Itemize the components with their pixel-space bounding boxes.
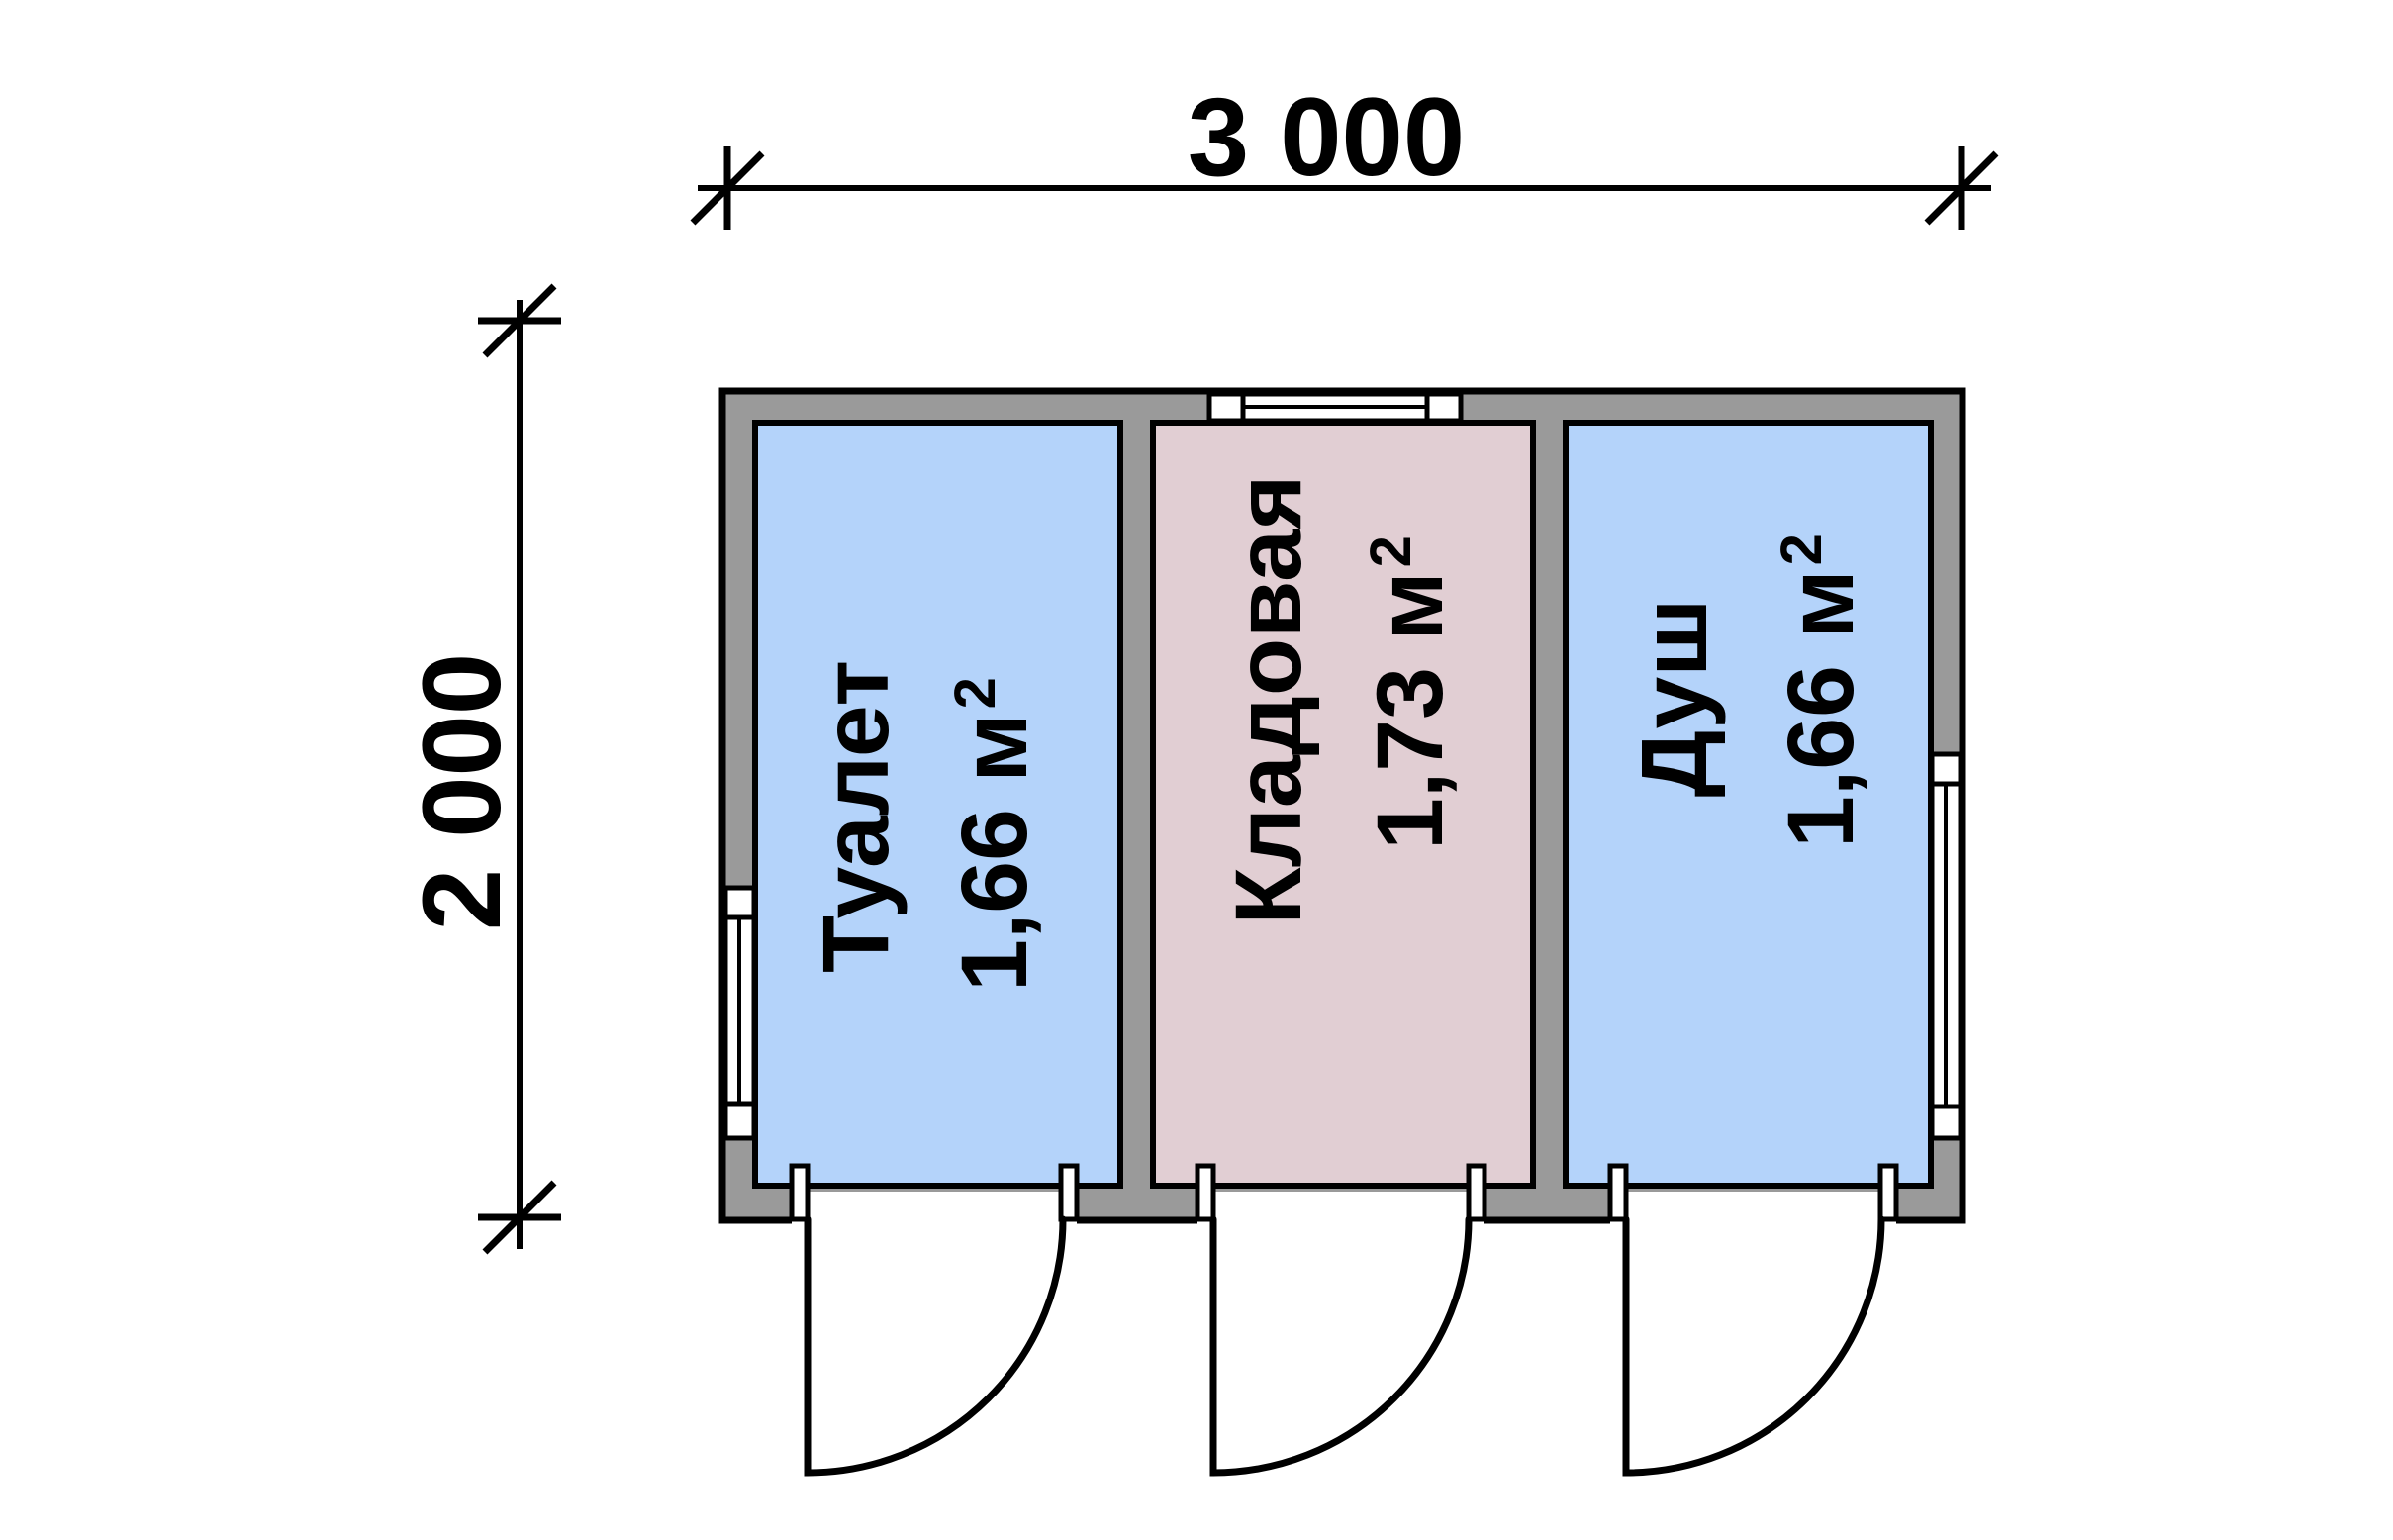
door2-jamb-right bbox=[1469, 1166, 1484, 1219]
room-storage bbox=[1153, 423, 1533, 1186]
window-right bbox=[1932, 754, 1961, 1138]
door3-jamb-left bbox=[1610, 1166, 1626, 1219]
floor-plan-svg: 3 000 2 000 Туалет 1,66 м2 Кладовая 1,73… bbox=[0, 0, 2393, 1540]
room-storage-name: Кладовая bbox=[1216, 475, 1321, 925]
door-openings bbox=[792, 1192, 1896, 1239]
room-toilet-name: Туалет bbox=[804, 660, 909, 973]
door3-jamb-right bbox=[1880, 1166, 1896, 1219]
room-storage-area: 1,73 м2 bbox=[1358, 535, 1463, 850]
room-shower-name: Душ bbox=[1622, 599, 1727, 798]
door1-jamb-left bbox=[792, 1166, 808, 1219]
room-toilet-area: 1,66 м2 bbox=[942, 677, 1047, 992]
window-left bbox=[725, 888, 754, 1138]
dimension-width-label: 3 000 bbox=[1188, 75, 1465, 199]
room-shower bbox=[1566, 423, 1931, 1186]
dimension-height-label: 2 000 bbox=[400, 653, 524, 930]
room-shower-area: 1,66 м2 bbox=[1769, 533, 1873, 848]
door2-jamb-left bbox=[1197, 1166, 1213, 1219]
window-top bbox=[1209, 394, 1461, 421]
door1-jamb-right bbox=[1061, 1166, 1077, 1219]
floor-plan-page: 3 000 2 000 Туалет 1,66 м2 Кладовая 1,73… bbox=[0, 0, 2393, 1540]
